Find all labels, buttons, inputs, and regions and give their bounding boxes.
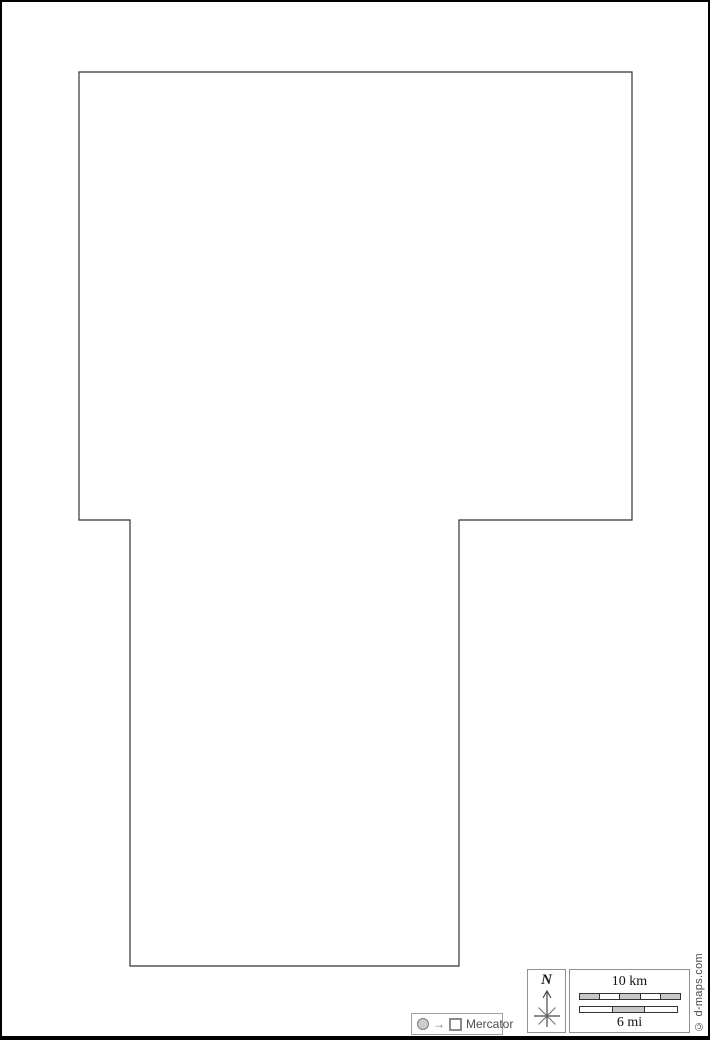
scale-km-bar xyxy=(579,993,681,1000)
territory-outline xyxy=(79,72,632,966)
projection-arrow-icon: → xyxy=(433,1018,445,1030)
blank-map-page: → Mercator N 10 km 6 mi © d-maps.com xyxy=(0,0,710,1040)
compass-arrow-icon xyxy=(532,989,562,1029)
map-canvas xyxy=(2,2,710,1040)
globe-sphere-icon xyxy=(417,1018,429,1030)
copyright-text: © d-maps.com xyxy=(693,953,705,1032)
scale-mi-label: 6 mi xyxy=(570,1016,689,1030)
flat-square-icon xyxy=(449,1018,462,1031)
projection-badge: → Mercator xyxy=(411,1013,503,1035)
scale-mi-bar xyxy=(579,1006,678,1013)
compass-box: N xyxy=(527,969,566,1033)
scale-km-label: 10 km xyxy=(570,975,689,989)
scale-bar-box: 10 km 6 mi xyxy=(569,969,690,1033)
north-label: N xyxy=(528,972,565,989)
projection-label: Mercator xyxy=(466,1018,513,1030)
